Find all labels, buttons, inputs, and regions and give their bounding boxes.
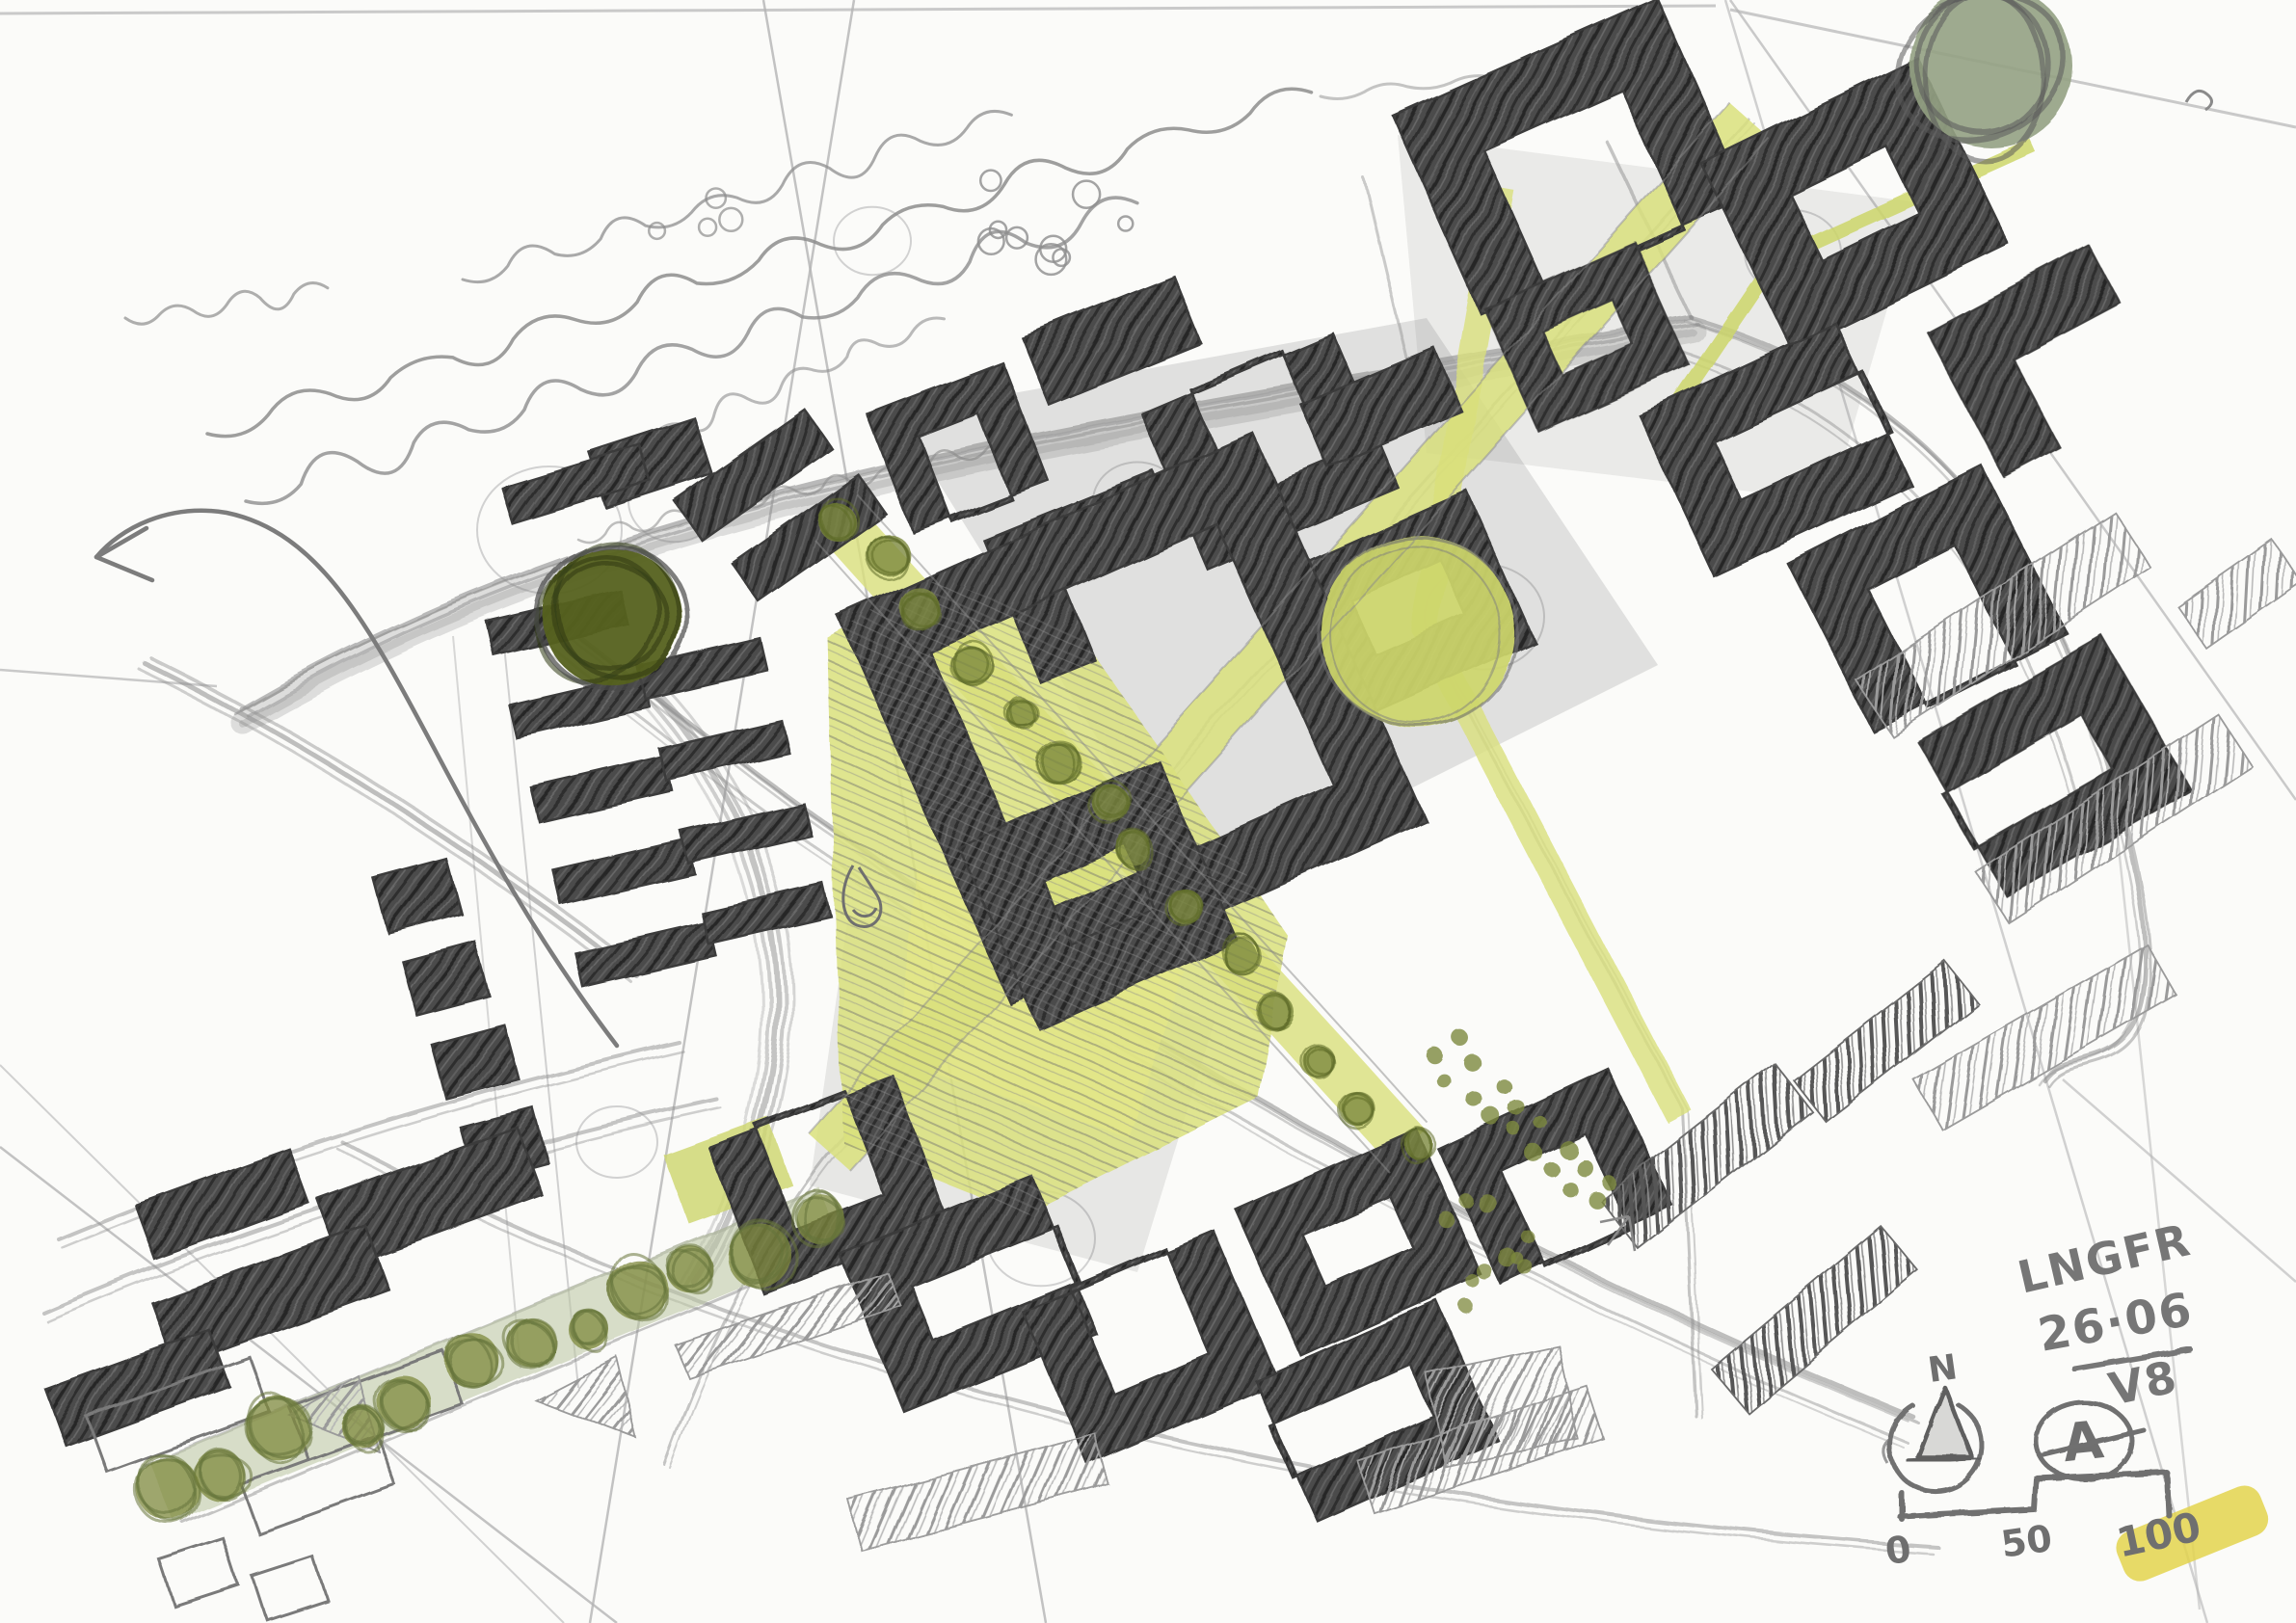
building-block	[374, 860, 461, 933]
north-label: N	[1926, 1347, 1961, 1391]
tree-circle-doodle	[1118, 216, 1133, 230]
tree-circle-doodle	[699, 219, 716, 236]
building-block	[702, 885, 831, 945]
direction-arrow-head	[96, 528, 152, 580]
street-tree-dot	[1428, 1049, 1444, 1065]
street-tree-dot	[1496, 1078, 1511, 1094]
title-block: LNGFR 26·06 V8	[2013, 1213, 2197, 1416]
street-tree-dot	[1544, 1161, 1559, 1176]
building-block	[501, 444, 651, 523]
scribble-line	[463, 111, 1011, 281]
street-tree-dot	[1477, 1264, 1492, 1280]
building-block	[681, 803, 810, 863]
construction-circle	[834, 207, 911, 275]
building-block	[553, 839, 694, 904]
north-baseline	[1909, 1458, 1980, 1461]
street-tree-dot	[1508, 1122, 1521, 1135]
building-block	[1928, 247, 2167, 477]
street-tree-dot	[1525, 1144, 1543, 1162]
hatched-strip	[2176, 539, 2296, 650]
tree-circle-doodle	[980, 171, 1001, 191]
scale-bar-line	[1900, 1473, 2169, 1519]
street-tree-dot	[1437, 1211, 1454, 1227]
street-tree-dot	[1483, 1108, 1502, 1127]
street-tree-dot	[1602, 1175, 1616, 1189]
tree-circle-doodle	[719, 208, 742, 231]
street-tree-dot	[1439, 1076, 1454, 1090]
street-tree-dot	[1508, 1100, 1525, 1116]
north-triangle	[1918, 1388, 1972, 1457]
street-tree-dot	[1458, 1193, 1472, 1207]
street-tree-dot	[1459, 1299, 1474, 1314]
street-tree-dot	[1576, 1159, 1593, 1177]
hatched-strip	[1711, 1226, 1918, 1413]
scale-label-50: 50	[1998, 1517, 2054, 1566]
hatched-strip	[848, 1433, 1108, 1551]
building-block	[531, 757, 672, 821]
building-block	[659, 721, 788, 781]
street-tree-dot	[1478, 1194, 1496, 1212]
street-tree-dot	[1522, 1231, 1535, 1244]
street-tree-dot	[1467, 1092, 1483, 1108]
urban-masterplan-drawing: LNGFR 26·06 V8 N A 0 50 100	[0, 0, 2296, 1623]
plot-outline	[159, 1538, 238, 1605]
street-tree-dot	[1588, 1190, 1605, 1208]
street-tree-dot	[1466, 1275, 1480, 1289]
scale-label-0: 0	[1882, 1528, 1913, 1573]
plot-outline	[253, 1557, 327, 1619]
scribble-line	[125, 283, 328, 325]
architect-mark: A	[2036, 1402, 2144, 1479]
tree-circle-doodle	[1073, 181, 1100, 208]
building-block	[1022, 1227, 1278, 1463]
construction-line	[0, 6, 1716, 13]
construction-line	[2116, 820, 2200, 1610]
street-tree-dot	[1535, 1116, 1548, 1130]
street-tree-dot	[1499, 1249, 1518, 1268]
building-block	[46, 1330, 229, 1446]
street-tree-dot	[1464, 1054, 1482, 1072]
building-block	[403, 943, 490, 1016]
street-tree-dot	[1562, 1182, 1578, 1197]
street-tree-dot	[1559, 1140, 1577, 1158]
scanned-masterplan-sketch: LNGFR 26·06 V8 N A 0 50 100	[0, 0, 2296, 1623]
tree-circle-doodle	[649, 223, 665, 239]
street-tree-dot	[1454, 1031, 1470, 1048]
